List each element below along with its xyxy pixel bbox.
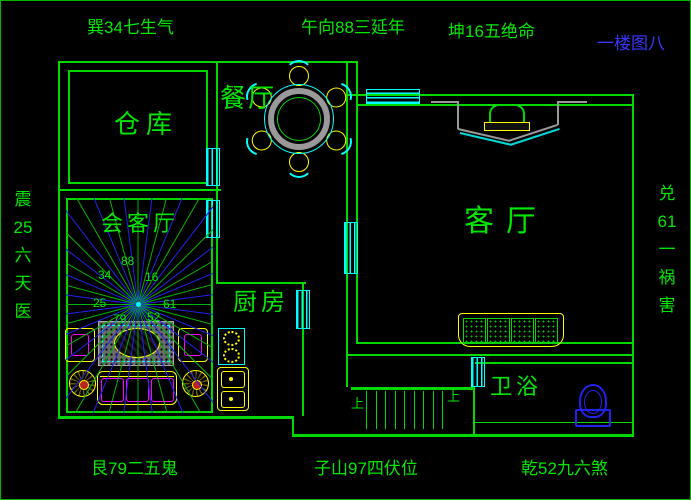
tv-stand: [484, 122, 530, 131]
kitchen-window: [296, 290, 310, 329]
star-number: 16: [145, 271, 158, 283]
stair-tread: [376, 391, 377, 429]
compass-bottom-center: 子山97四伏位: [314, 460, 418, 477]
wall-segment: [58, 61, 358, 63]
storage-room-label: 仓库: [114, 111, 178, 137]
stairs-up-left: 上: [351, 397, 364, 410]
plant-left: [69, 370, 96, 397]
tv-set: [489, 104, 525, 124]
compass-top-left: 巽34七生气: [87, 19, 174, 36]
living-top-window: [366, 89, 420, 104]
compass-right-char: 害: [659, 297, 676, 314]
star-number: 79: [113, 313, 126, 325]
storage-window: [206, 148, 220, 186]
reception-room-label: 会客厅: [101, 213, 179, 235]
compass-right-column: 兑 61 一 祸 害: [653, 185, 681, 314]
stairs-up-right: 上: [447, 390, 460, 403]
compass-left-char: 六: [15, 247, 32, 264]
dining-room-label: 餐厅: [220, 85, 276, 111]
compass-left-char: 25: [14, 219, 33, 236]
toilet: [571, 383, 617, 431]
tv-niche-line: [431, 101, 459, 103]
stair-tread: [395, 391, 396, 429]
coffee-table: [114, 328, 160, 358]
floorplan-canvas: 巽34七生气 午向88三延年 坤16五绝命 一楼图八 艮79二五鬼 子山97四伏…: [0, 0, 691, 500]
compass-left-char: 天: [15, 275, 32, 292]
kitchen-sink: [217, 367, 249, 411]
dining-table-inner: [277, 97, 321, 141]
wall-segment: [58, 416, 294, 419]
wall-segment: [473, 387, 475, 436]
living-left-window: [344, 222, 358, 274]
star-number: 25: [93, 297, 106, 309]
star-number: 34: [98, 269, 111, 281]
wall-segment: [632, 356, 634, 436]
tv-niche-line: [557, 101, 559, 125]
stair-tread: [385, 391, 386, 429]
compass-right-char: 祸: [659, 269, 676, 286]
wall-segment: [58, 189, 221, 191]
wall-segment: [346, 356, 348, 387]
stair-tread: [433, 391, 434, 429]
compass-top-center: 午向88三延年: [301, 19, 405, 36]
wall-segment: [216, 282, 306, 284]
reception-window: [206, 200, 220, 238]
compass-right-char: 一: [659, 241, 676, 258]
stove: [218, 328, 245, 365]
kitchen-label: 厨房: [233, 291, 289, 315]
stair-tread: [404, 391, 405, 429]
living-sofa: [458, 313, 564, 347]
compass-right-char: 兑: [659, 185, 676, 202]
compass-right-char: 61: [658, 213, 677, 230]
compass-left-char: 医: [15, 303, 32, 320]
compass-left-column: 震 25 六 天 医: [9, 191, 37, 320]
tv-niche-line: [457, 101, 459, 129]
armchair-right: [178, 328, 208, 362]
armchair-left: [65, 328, 95, 362]
star-number: 61: [163, 298, 176, 310]
wall-segment: [292, 434, 634, 437]
sofa: [97, 371, 177, 405]
bathroom-door: [471, 357, 485, 387]
star-number: 52: [147, 311, 160, 323]
bathroom-label: 卫浴: [490, 376, 542, 398]
living-room-label: 客厅: [464, 207, 548, 237]
wall-segment: [292, 416, 294, 436]
wall-segment: [58, 61, 60, 419]
stair-tread: [442, 391, 443, 429]
compass-top-right: 坤16五绝命: [448, 23, 535, 40]
compass-bottom-left: 艮79二五鬼: [91, 460, 178, 477]
tv-niche-line: [557, 101, 587, 103]
plant-right: [182, 370, 209, 397]
stair-tread: [366, 391, 367, 429]
wall-segment: [475, 362, 632, 364]
stair-tread: [423, 391, 424, 429]
star-number: 88: [121, 255, 134, 267]
compass-bottom-right: 乾52九六煞: [521, 460, 608, 477]
drawing-title: 一楼图八: [597, 35, 665, 52]
compass-left-char: 震: [15, 191, 32, 208]
stair-tread: [414, 391, 415, 429]
